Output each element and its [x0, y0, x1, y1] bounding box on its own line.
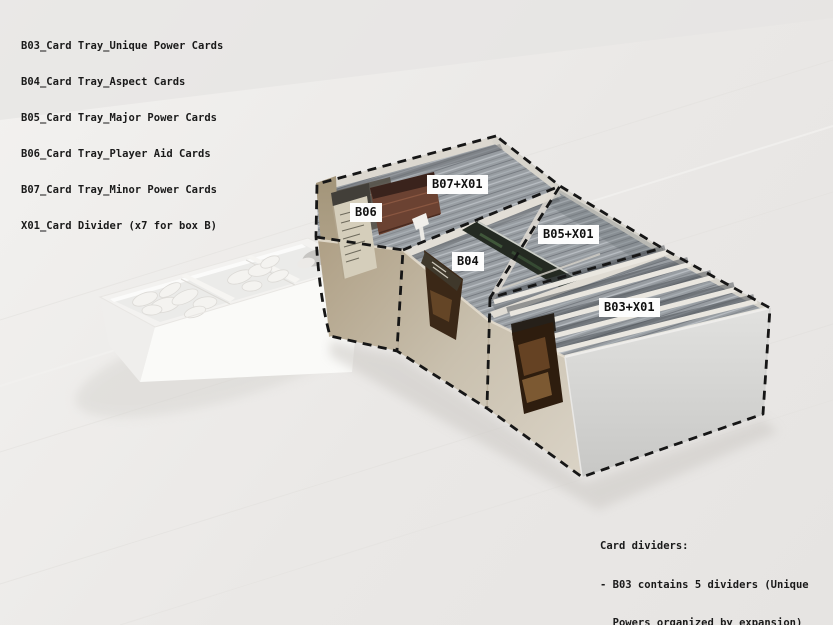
- label-chip-b05: B05+X01: [538, 225, 599, 244]
- notes-line: Powers organized by expansion): [600, 617, 809, 625]
- label-chip-b04: B04: [452, 252, 484, 271]
- legend-line: B05_Card Tray_Major Power Cards: [21, 112, 223, 124]
- legend-line: B03_Card Tray_Unique Power Cards: [21, 40, 223, 52]
- legend-line: B04_Card Tray_Aspect Cards: [21, 76, 223, 88]
- notes-text-block: Card dividers: - B03 contains 5 dividers…: [600, 515, 809, 625]
- label-chip-b06: B06: [350, 203, 382, 222]
- label-chip-b03: B03+X01: [599, 298, 660, 317]
- notes-line: Card dividers:: [600, 540, 809, 553]
- notes-line: - B03 contains 5 dividers (Unique: [600, 579, 809, 592]
- legend-line: B06_Card Tray_Player Aid Cards: [21, 148, 223, 160]
- label-chip-b07: B07+X01: [427, 175, 488, 194]
- legend-line: B07_Card Tray_Minor Power Cards: [21, 184, 223, 196]
- annotated-photo: B03_Card Tray_Unique Power Cards B04_Car…: [0, 0, 833, 625]
- legend-text-block: B03_Card Tray_Unique Power Cards B04_Car…: [21, 16, 223, 256]
- legend-line: X01_Card Divider (x7 for box B): [21, 220, 223, 232]
